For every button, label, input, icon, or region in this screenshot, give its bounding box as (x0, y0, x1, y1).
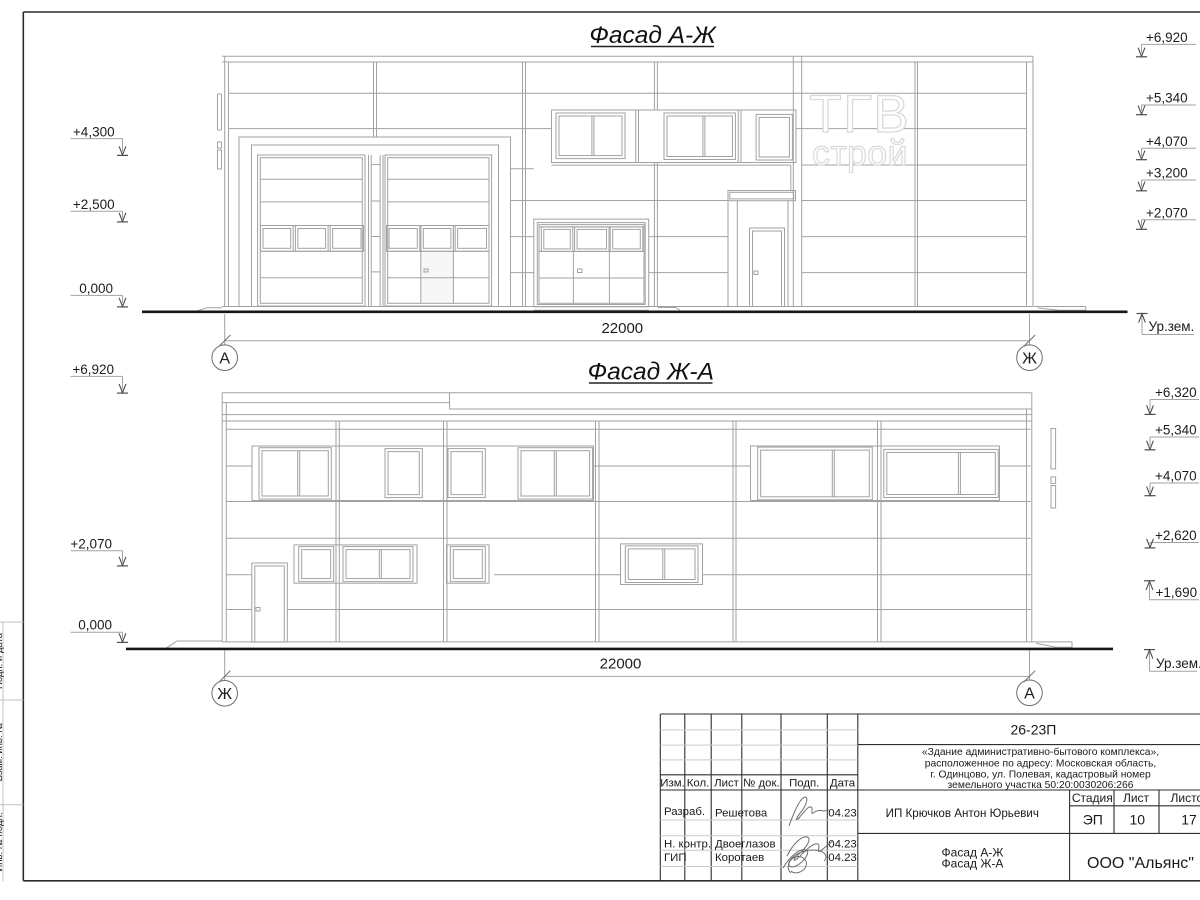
svg-text:земельного участка 50:20:00302: земельного участка 50:20:0030206:266 (948, 780, 1134, 791)
svg-text:+5,340: +5,340 (1146, 91, 1188, 106)
svg-text:Фасад Ж-А: Фасад Ж-А (942, 857, 1004, 871)
svg-text:+4,070: +4,070 (1155, 469, 1197, 484)
svg-text:Лист: Лист (714, 778, 740, 790)
svg-text:+6,920: +6,920 (1146, 30, 1188, 45)
svg-text:Инв. № подл.: Инв. № подл. (0, 812, 5, 871)
svg-text:строй: строй (812, 133, 908, 173)
svg-text:ООО "Альянс": ООО "Альянс" (1087, 855, 1194, 872)
svg-text:Двоеглазов: Двоеглазов (715, 839, 776, 851)
svg-text:22000: 22000 (601, 320, 643, 337)
svg-text:Кол.: Кол. (687, 778, 710, 790)
svg-text:+5,340: +5,340 (1155, 423, 1197, 438)
svg-text:Н. контр.: Н. контр. (664, 839, 711, 851)
svg-text:Листов: Листов (1171, 791, 1200, 805)
svg-text:Стадия: Стадия (1072, 791, 1113, 805)
svg-text:17: 17 (1181, 812, 1197, 828)
svg-text:ГИП: ГИП (664, 852, 687, 864)
svg-text:Ур.зем.: Ур.зем. (1149, 319, 1195, 334)
svg-text:+4,300: +4,300 (73, 124, 115, 139)
svg-text:г. Одинцово, ул. Полевая, када: г. Одинцово, ул. Полевая, кадастровый но… (930, 770, 1151, 781)
svg-text:10: 10 (1130, 812, 1146, 828)
svg-text:26-23П: 26-23П (1010, 722, 1056, 738)
svg-text:+6,320: +6,320 (1155, 385, 1197, 400)
svg-text:Дата: Дата (830, 778, 856, 790)
svg-text:04.23: 04.23 (828, 808, 857, 820)
svg-text:+2,500: +2,500 (73, 197, 115, 212)
svg-text:А: А (219, 351, 230, 368)
svg-text:22000: 22000 (600, 656, 642, 673)
svg-text:+4,070: +4,070 (1146, 134, 1188, 149)
svg-text:Изм.: Изм. (660, 778, 684, 790)
svg-text:«Здание административно-бытово: «Здание административно-бытового комплек… (922, 746, 1159, 758)
svg-text:+1,690: +1,690 (1156, 585, 1198, 600)
svg-text:04.23: 04.23 (828, 839, 857, 851)
svg-text:Подп. и дата: Подп. и дата (0, 632, 5, 689)
svg-text:+3,200: +3,200 (1146, 166, 1188, 181)
svg-text:Фасад А-Ж: Фасад А-Ж (589, 22, 717, 49)
svg-text:Разраб.: Разраб. (664, 806, 705, 818)
svg-text:+2,070: +2,070 (70, 536, 112, 551)
svg-text:ЭП: ЭП (1083, 812, 1103, 828)
svg-text:Подп.: Подп. (789, 778, 819, 790)
svg-text:Фасад Ж-А: Фасад Ж-А (588, 359, 714, 386)
svg-text:0,000: 0,000 (79, 281, 113, 296)
svg-text:Лист: Лист (1123, 791, 1150, 805)
svg-text:0,000: 0,000 (78, 617, 112, 632)
svg-text:Ж: Ж (1022, 351, 1037, 368)
svg-text:ИП Крючков Антон Юрьевич: ИП Крючков Антон Юрьевич (886, 807, 1039, 820)
svg-text:расположенное по адресу: Моско: расположенное по адресу: Московская обла… (925, 757, 1156, 769)
svg-text:Ж: Ж (217, 686, 232, 703)
svg-text:Решетова: Решетова (715, 808, 768, 820)
svg-text:+6,920: +6,920 (72, 362, 114, 377)
svg-text:№ док.: № док. (743, 778, 780, 790)
svg-text:Взам. инв. №: Взам. инв. № (0, 723, 5, 782)
svg-text:Коротаев: Коротаев (715, 852, 764, 864)
svg-text:А: А (1024, 686, 1035, 703)
svg-text:04.23: 04.23 (828, 852, 857, 864)
svg-text:+2,070: +2,070 (1146, 206, 1188, 221)
svg-text:+2,620: +2,620 (1155, 528, 1197, 543)
svg-text:Ур.зем.: Ур.зем. (1156, 656, 1200, 671)
